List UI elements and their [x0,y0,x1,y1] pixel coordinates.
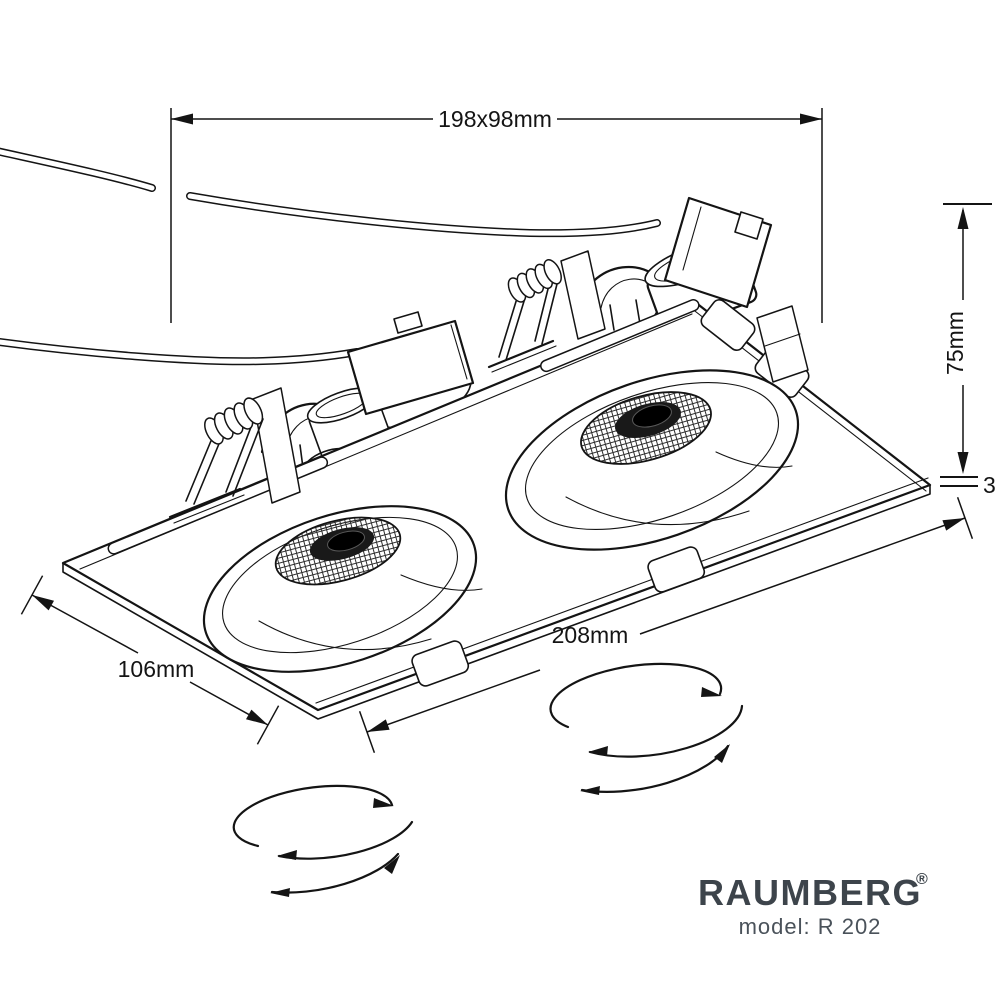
holder-left-notch [394,312,422,333]
dimension-thickness-ticks [940,477,978,486]
dimension-depth-arrow-up [958,207,969,229]
swirl-right-mid-arc [590,706,742,757]
dimension-length-arrow-right [942,518,965,531]
swirl-left-bottom-arc [272,854,398,893]
swirl-left-arrowhead-4 [270,888,290,897]
rotation-arrow-left [234,786,412,897]
clip-left-coil [201,395,266,447]
brand-block: RAUMBERG ® model: R 202 [698,871,928,939]
dimension-depth: 75mm [942,204,992,474]
dimension-width-arrow-right [246,710,268,725]
clip-middle-post [561,251,605,339]
dimension-thickness-label: 3 [983,472,996,498]
dimension-depth-arrow-down [958,452,969,474]
dimension-width-label: 106mm [118,656,195,682]
dimension-width-arrow-left [32,595,54,610]
dimension-thickness: 3 [940,472,996,498]
model-label: model: R 202 [739,914,882,939]
registered-trademark-icon: ® [916,871,928,888]
swirl-left-mid-arc [279,822,412,859]
cable-top-left-fill [0,150,152,188]
swirl-right-arrowhead-4 [580,786,600,795]
swirl-left-top-arc [234,786,392,846]
dimension-length-arrow-left [367,719,390,732]
brand-name: RAUMBERG [698,872,922,913]
rotation-arrow-right [551,664,742,795]
dimension-cutout-arrow-left [171,114,193,125]
clip-middle-coil [505,257,565,305]
power-cables [0,150,657,361]
dimension-depth-label: 75mm [942,311,968,375]
dimension-cutout-label: 198x98mm [438,106,552,132]
swirl-right-arrowhead-1 [701,687,722,697]
dimension-cutout-arrow-right [800,114,822,125]
technical-drawing-canvas: 198x98mm 75mm 3 208mm 106mm RAUMBERG ® m… [0,0,1000,1000]
swirl-left-arrowhead-2 [277,850,297,860]
cable-top-right-fill [190,196,657,233]
dimension-length-label: 208mm [552,622,629,648]
swirl-right-top-arc [551,664,722,727]
swirl-right-arrowhead-3 [714,744,730,763]
downlight-drawing: 198x98mm 75mm 3 208mm 106mm RAUMBERG ® m… [0,0,1000,1000]
